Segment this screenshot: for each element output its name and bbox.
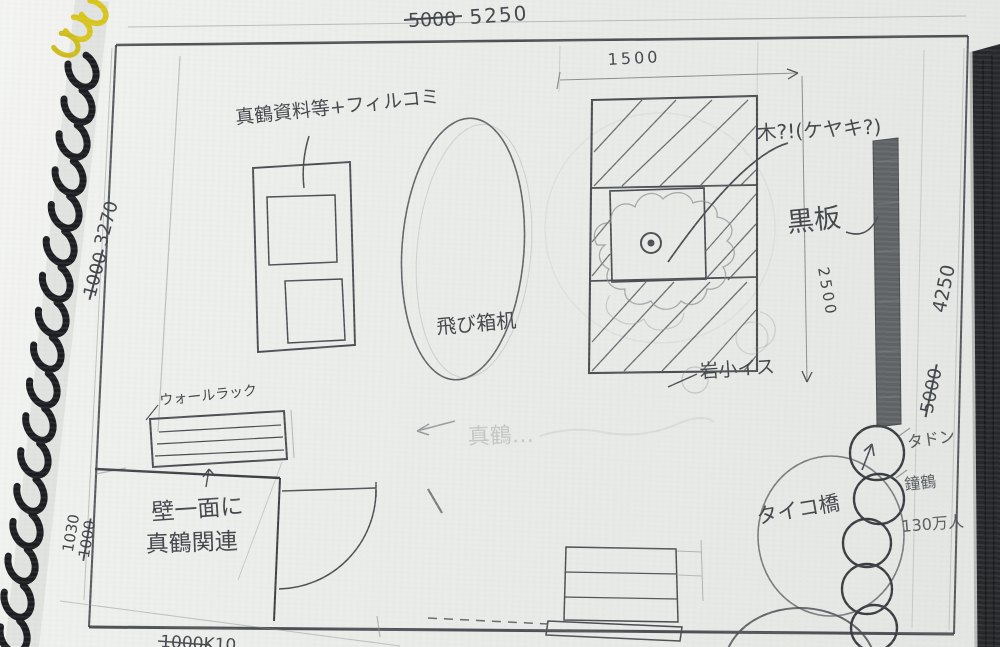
shelf-unit bbox=[253, 136, 355, 352]
inner-height-text: 2500 bbox=[814, 266, 840, 319]
steps bbox=[546, 540, 703, 641]
notebook-page: 5000 5250 3270 1000 1030 1000 bbox=[0, 0, 1000, 647]
wall-rack-label: ウォールラック bbox=[159, 383, 258, 409]
side-note-1b: タドン bbox=[906, 426, 956, 451]
wall-rack bbox=[146, 405, 294, 467]
floor-plan-sketch: 5000 5250 3270 1000 1030 1000 bbox=[0, 0, 1000, 647]
blackboard bbox=[846, 138, 901, 427]
shelf-label: 真鶴資料等+フィルコミ bbox=[234, 86, 440, 129]
tree-label: 木?!(ケヤキ?) bbox=[756, 114, 882, 145]
notebook-right-edge bbox=[971, 44, 1000, 647]
right-dim-new: 4250 bbox=[928, 263, 960, 315]
tree-plan-symbol bbox=[594, 193, 734, 330]
faint-erased-note: 真鶴… bbox=[417, 418, 714, 450]
taiko-bridge bbox=[724, 426, 904, 647]
blackboard-label: 黒板 bbox=[785, 202, 842, 238]
oval-table bbox=[393, 114, 542, 384]
top-dim-new: 5250 bbox=[469, 1, 529, 29]
planter-box bbox=[545, 96, 788, 393]
left-dim-new: 3270 bbox=[91, 199, 123, 249]
inner-width-text: 1500 bbox=[607, 47, 661, 69]
inner-width-dimension: 1500 bbox=[557, 41, 798, 96]
dashed-threshold bbox=[428, 618, 548, 624]
faint-note-text: 真鶴… bbox=[467, 423, 534, 450]
stray-pencil-mark bbox=[428, 489, 442, 513]
wall-note-line2: 真鶴関連 bbox=[145, 529, 238, 558]
bottom-dimension: 1000K10 bbox=[60, 601, 400, 647]
side-note-3: 130万人 bbox=[901, 512, 965, 536]
top-dimension: 5000 5250 bbox=[128, 1, 966, 32]
rock-chairs-label: 岩小イス bbox=[699, 356, 776, 383]
side-notes: タドン タドン 鐘鶴 130万人 bbox=[896, 426, 965, 536]
wall-note-line1: 壁一面に bbox=[151, 494, 245, 526]
side-note-2: 鐘鶴 bbox=[903, 472, 937, 494]
